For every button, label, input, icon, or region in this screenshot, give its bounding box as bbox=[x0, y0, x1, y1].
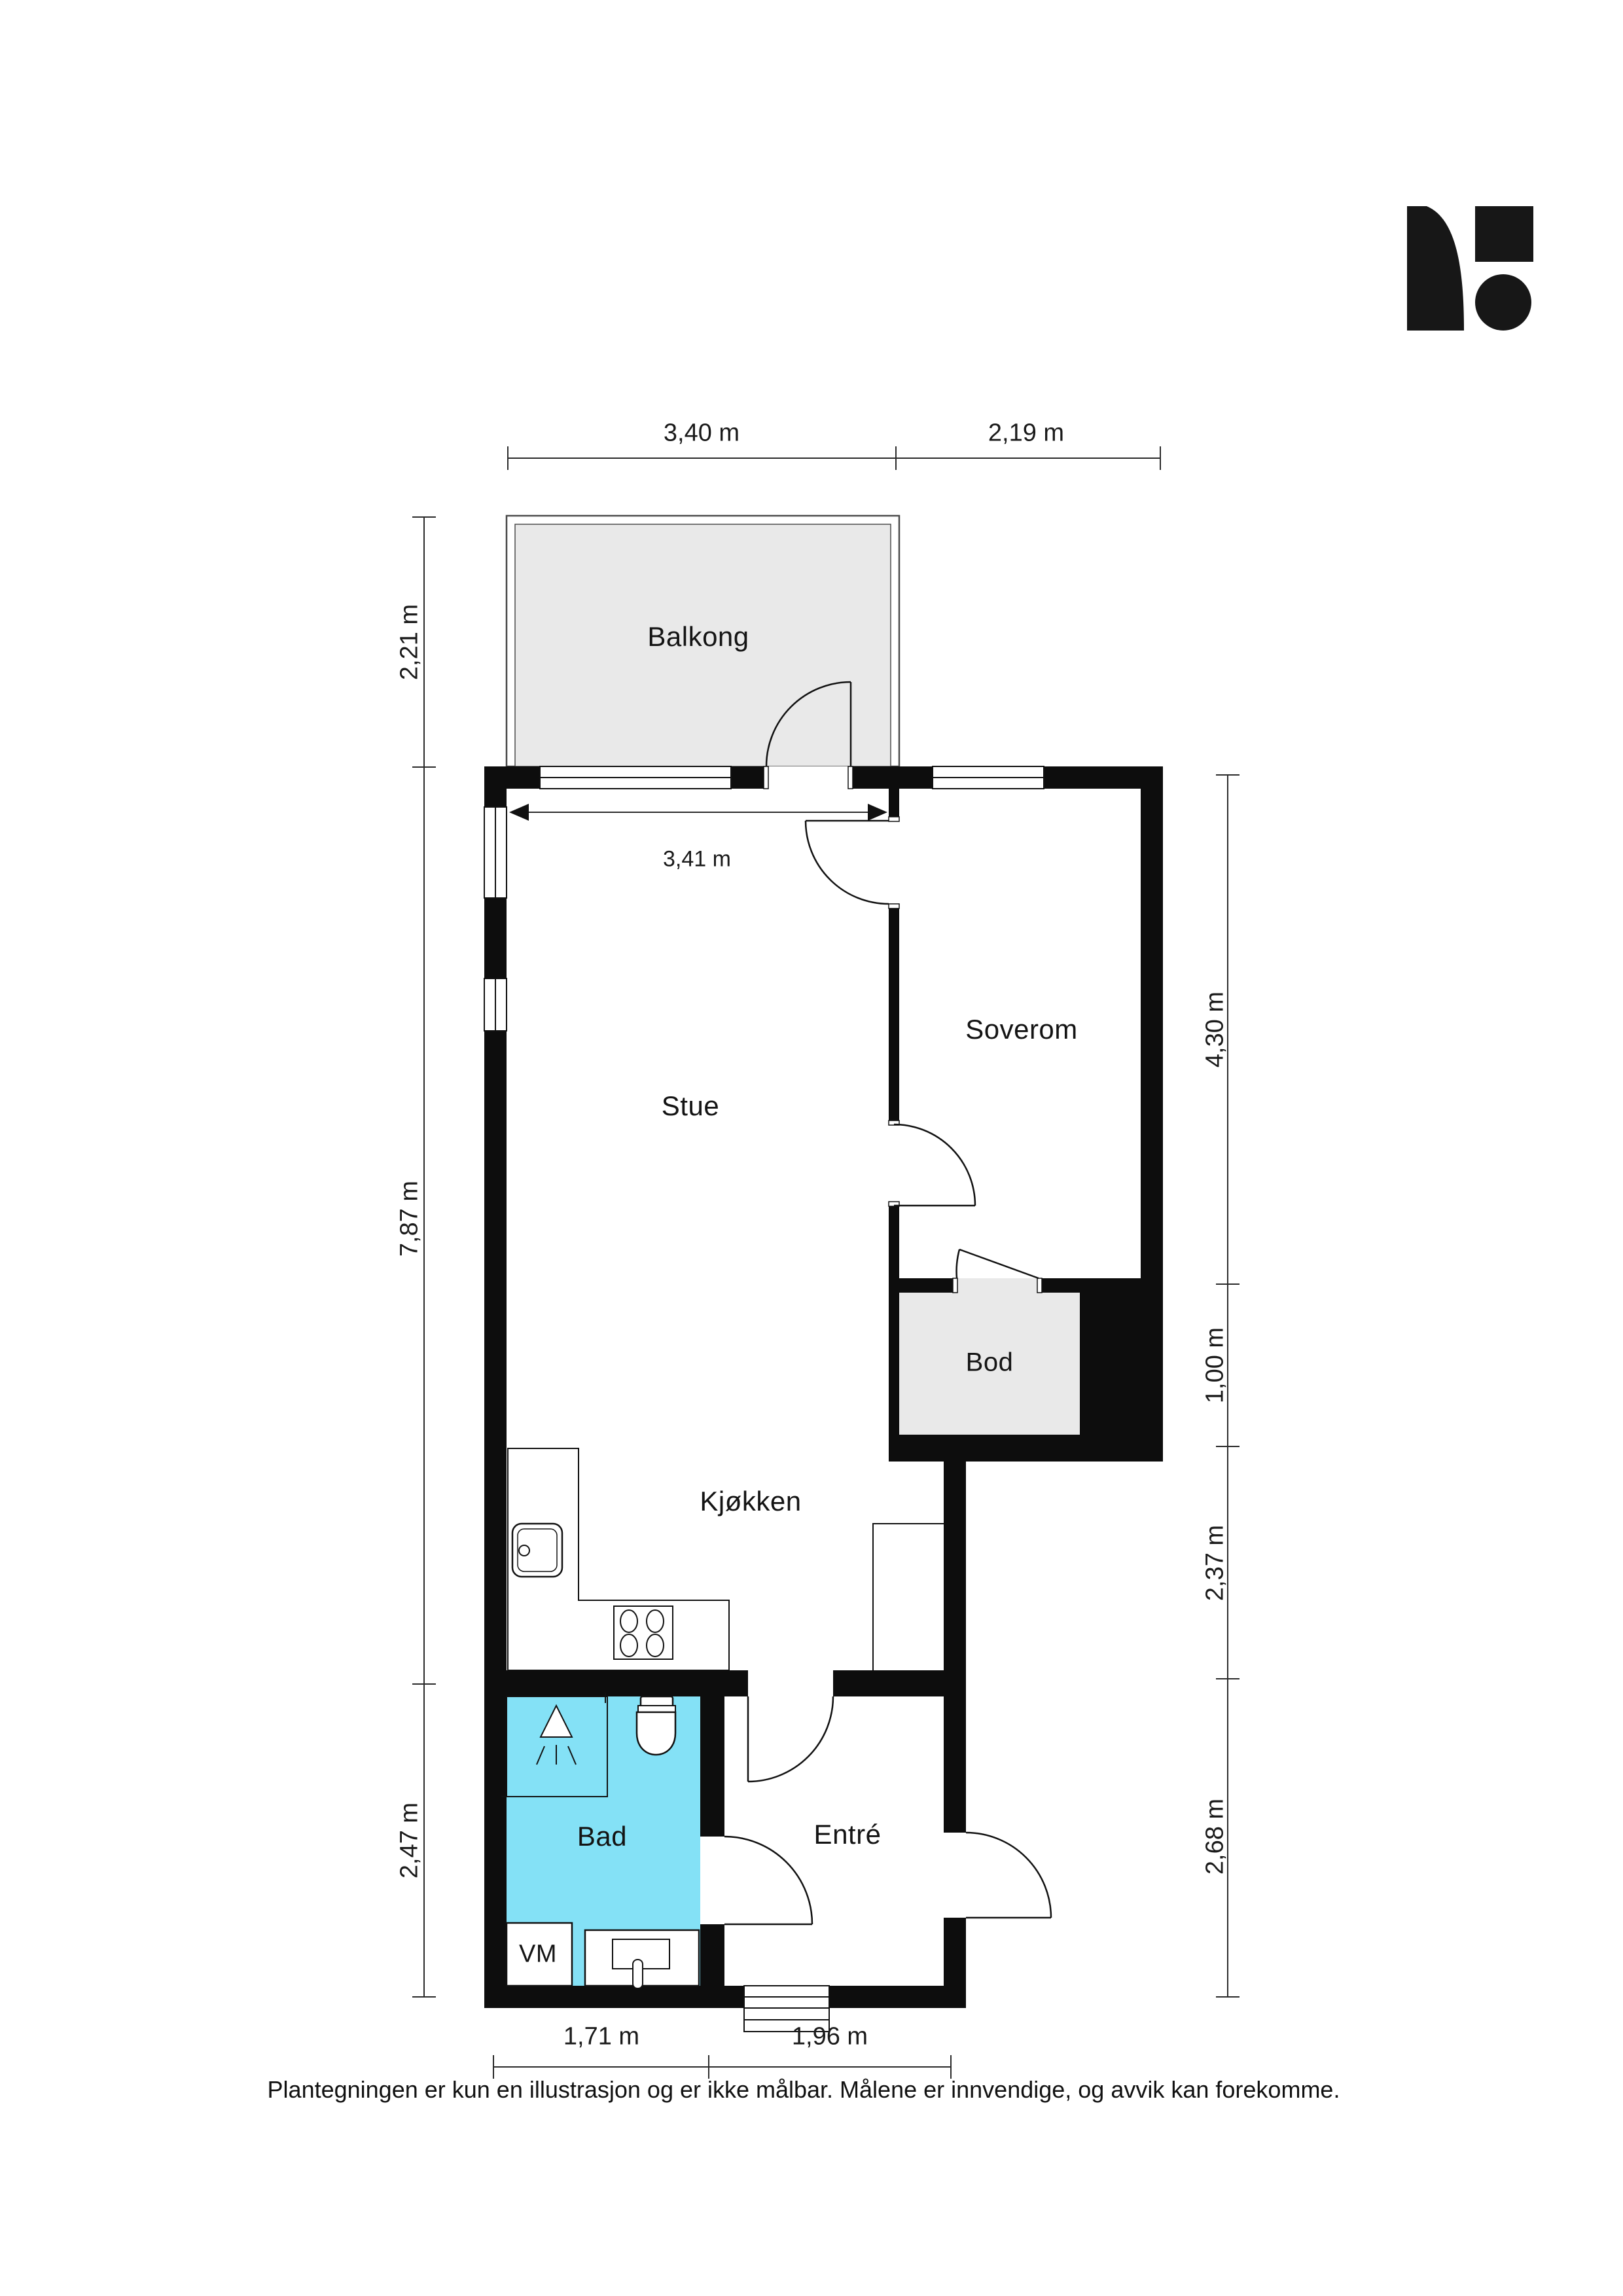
room-label-entre: Entré bbox=[814, 1819, 882, 1850]
wall-bottom bbox=[484, 1986, 966, 2008]
dim-label-right-1: 4,30 m bbox=[1202, 992, 1230, 1067]
wall-bath-entre-lower bbox=[700, 1924, 724, 1986]
washing-machine-label: VM bbox=[519, 1941, 557, 1969]
jamb-bod-b bbox=[1037, 1278, 1042, 1293]
room-fills bbox=[507, 516, 1080, 1986]
logo-square bbox=[1475, 206, 1533, 262]
kitchen-entre-door-swing bbox=[748, 1696, 833, 1782]
room-label-kjokken: Kjøkken bbox=[700, 1486, 801, 1517]
dim-label-right-2: 1,00 m bbox=[1202, 1327, 1230, 1403]
wall-corridor-right bbox=[944, 1462, 966, 1833]
wall-corridor-right-lower bbox=[944, 1918, 966, 2008]
dim-label-left-3: 2,47 m bbox=[396, 1803, 424, 1878]
dim-label-left-2: 7,87 m bbox=[396, 1181, 424, 1257]
kitchen-sink-drain bbox=[519, 1545, 529, 1556]
wall-left bbox=[484, 766, 507, 2008]
floor-plan-page: Balkong Stue Soverom Bod Kjøkken Bad Ent… bbox=[0, 0, 1623, 2296]
dim-label-top-2: 2,19 m bbox=[988, 420, 1064, 448]
toilet-flange bbox=[638, 1706, 675, 1712]
toilet-bowl bbox=[637, 1712, 675, 1755]
dim-label-right-4: 2,68 m bbox=[1202, 1799, 1230, 1874]
arrowhead-left bbox=[509, 804, 529, 821]
kitchen-cabinet bbox=[873, 1524, 944, 1670]
soverom-upper-door-swing bbox=[806, 821, 889, 904]
wall-bod-right-mass bbox=[1080, 1278, 1163, 1462]
floor-plan-drawing bbox=[0, 0, 1623, 2296]
bath-vanity-faucet bbox=[633, 1960, 643, 1988]
room-label-stue: Stue bbox=[662, 1090, 719, 1122]
jamb-soverom-upper-b bbox=[889, 904, 899, 908]
bod-door-opening bbox=[957, 1278, 1039, 1293]
dim-label-right-3: 2,37 m bbox=[1202, 1525, 1230, 1601]
wall-right bbox=[1141, 766, 1163, 1278]
wall-bod-bottom bbox=[889, 1435, 1163, 1462]
soverom-upper-door bbox=[806, 821, 889, 904]
wall-kitchen-bath-left bbox=[507, 1670, 748, 1696]
broker-logo bbox=[1407, 206, 1533, 331]
logo-circle bbox=[1475, 274, 1531, 331]
front-door-swing bbox=[966, 1833, 1051, 1918]
dim-label-top-1: 3,40 m bbox=[664, 420, 740, 448]
bath-door bbox=[724, 1837, 812, 1924]
balcony-door-opening bbox=[766, 766, 851, 789]
arrowhead-right bbox=[868, 804, 887, 821]
balcony-door-jamb-right bbox=[848, 766, 853, 789]
room-label-bad: Bad bbox=[577, 1821, 627, 1852]
wall-soverom-lower bbox=[889, 1206, 899, 1435]
soverom-lower-door-swing bbox=[894, 1124, 975, 1206]
soverom-lower-door bbox=[894, 1124, 975, 1206]
dim-label-bottom-2: 1,96 m bbox=[792, 2023, 868, 2051]
room-label-soverom: Soverom bbox=[965, 1014, 1078, 1045]
dim-label-bottom-1: 1,71 m bbox=[563, 2023, 639, 2051]
dim-label-internal: 3,41 m bbox=[663, 847, 731, 872]
wall-kitchen-bath-right bbox=[833, 1670, 944, 1696]
footer-disclaimer: Plantegningen er kun en illustrasjon og … bbox=[268, 2076, 1340, 2104]
bath-door-swing bbox=[724, 1837, 812, 1924]
dim-label-left-1: 2,21 m bbox=[396, 604, 424, 680]
jamb-bod-a bbox=[953, 1278, 957, 1293]
bod-door-swing bbox=[957, 1249, 959, 1278]
wall-soverom-mid bbox=[889, 905, 899, 1124]
front-door bbox=[966, 1833, 1051, 1918]
wall-bath-entre-upper bbox=[700, 1696, 724, 1837]
balcony-door-jamb-left bbox=[764, 766, 768, 789]
room-label-balkong: Balkong bbox=[647, 621, 749, 653]
bod-door bbox=[957, 1249, 1039, 1278]
room-label-bod: Bod bbox=[966, 1348, 1014, 1378]
bod-door-leaf bbox=[959, 1249, 1039, 1278]
logo-sail-shape bbox=[1407, 206, 1464, 331]
jamb-soverom-upper-a bbox=[889, 817, 899, 821]
kitchen-entre-door bbox=[748, 1696, 833, 1782]
